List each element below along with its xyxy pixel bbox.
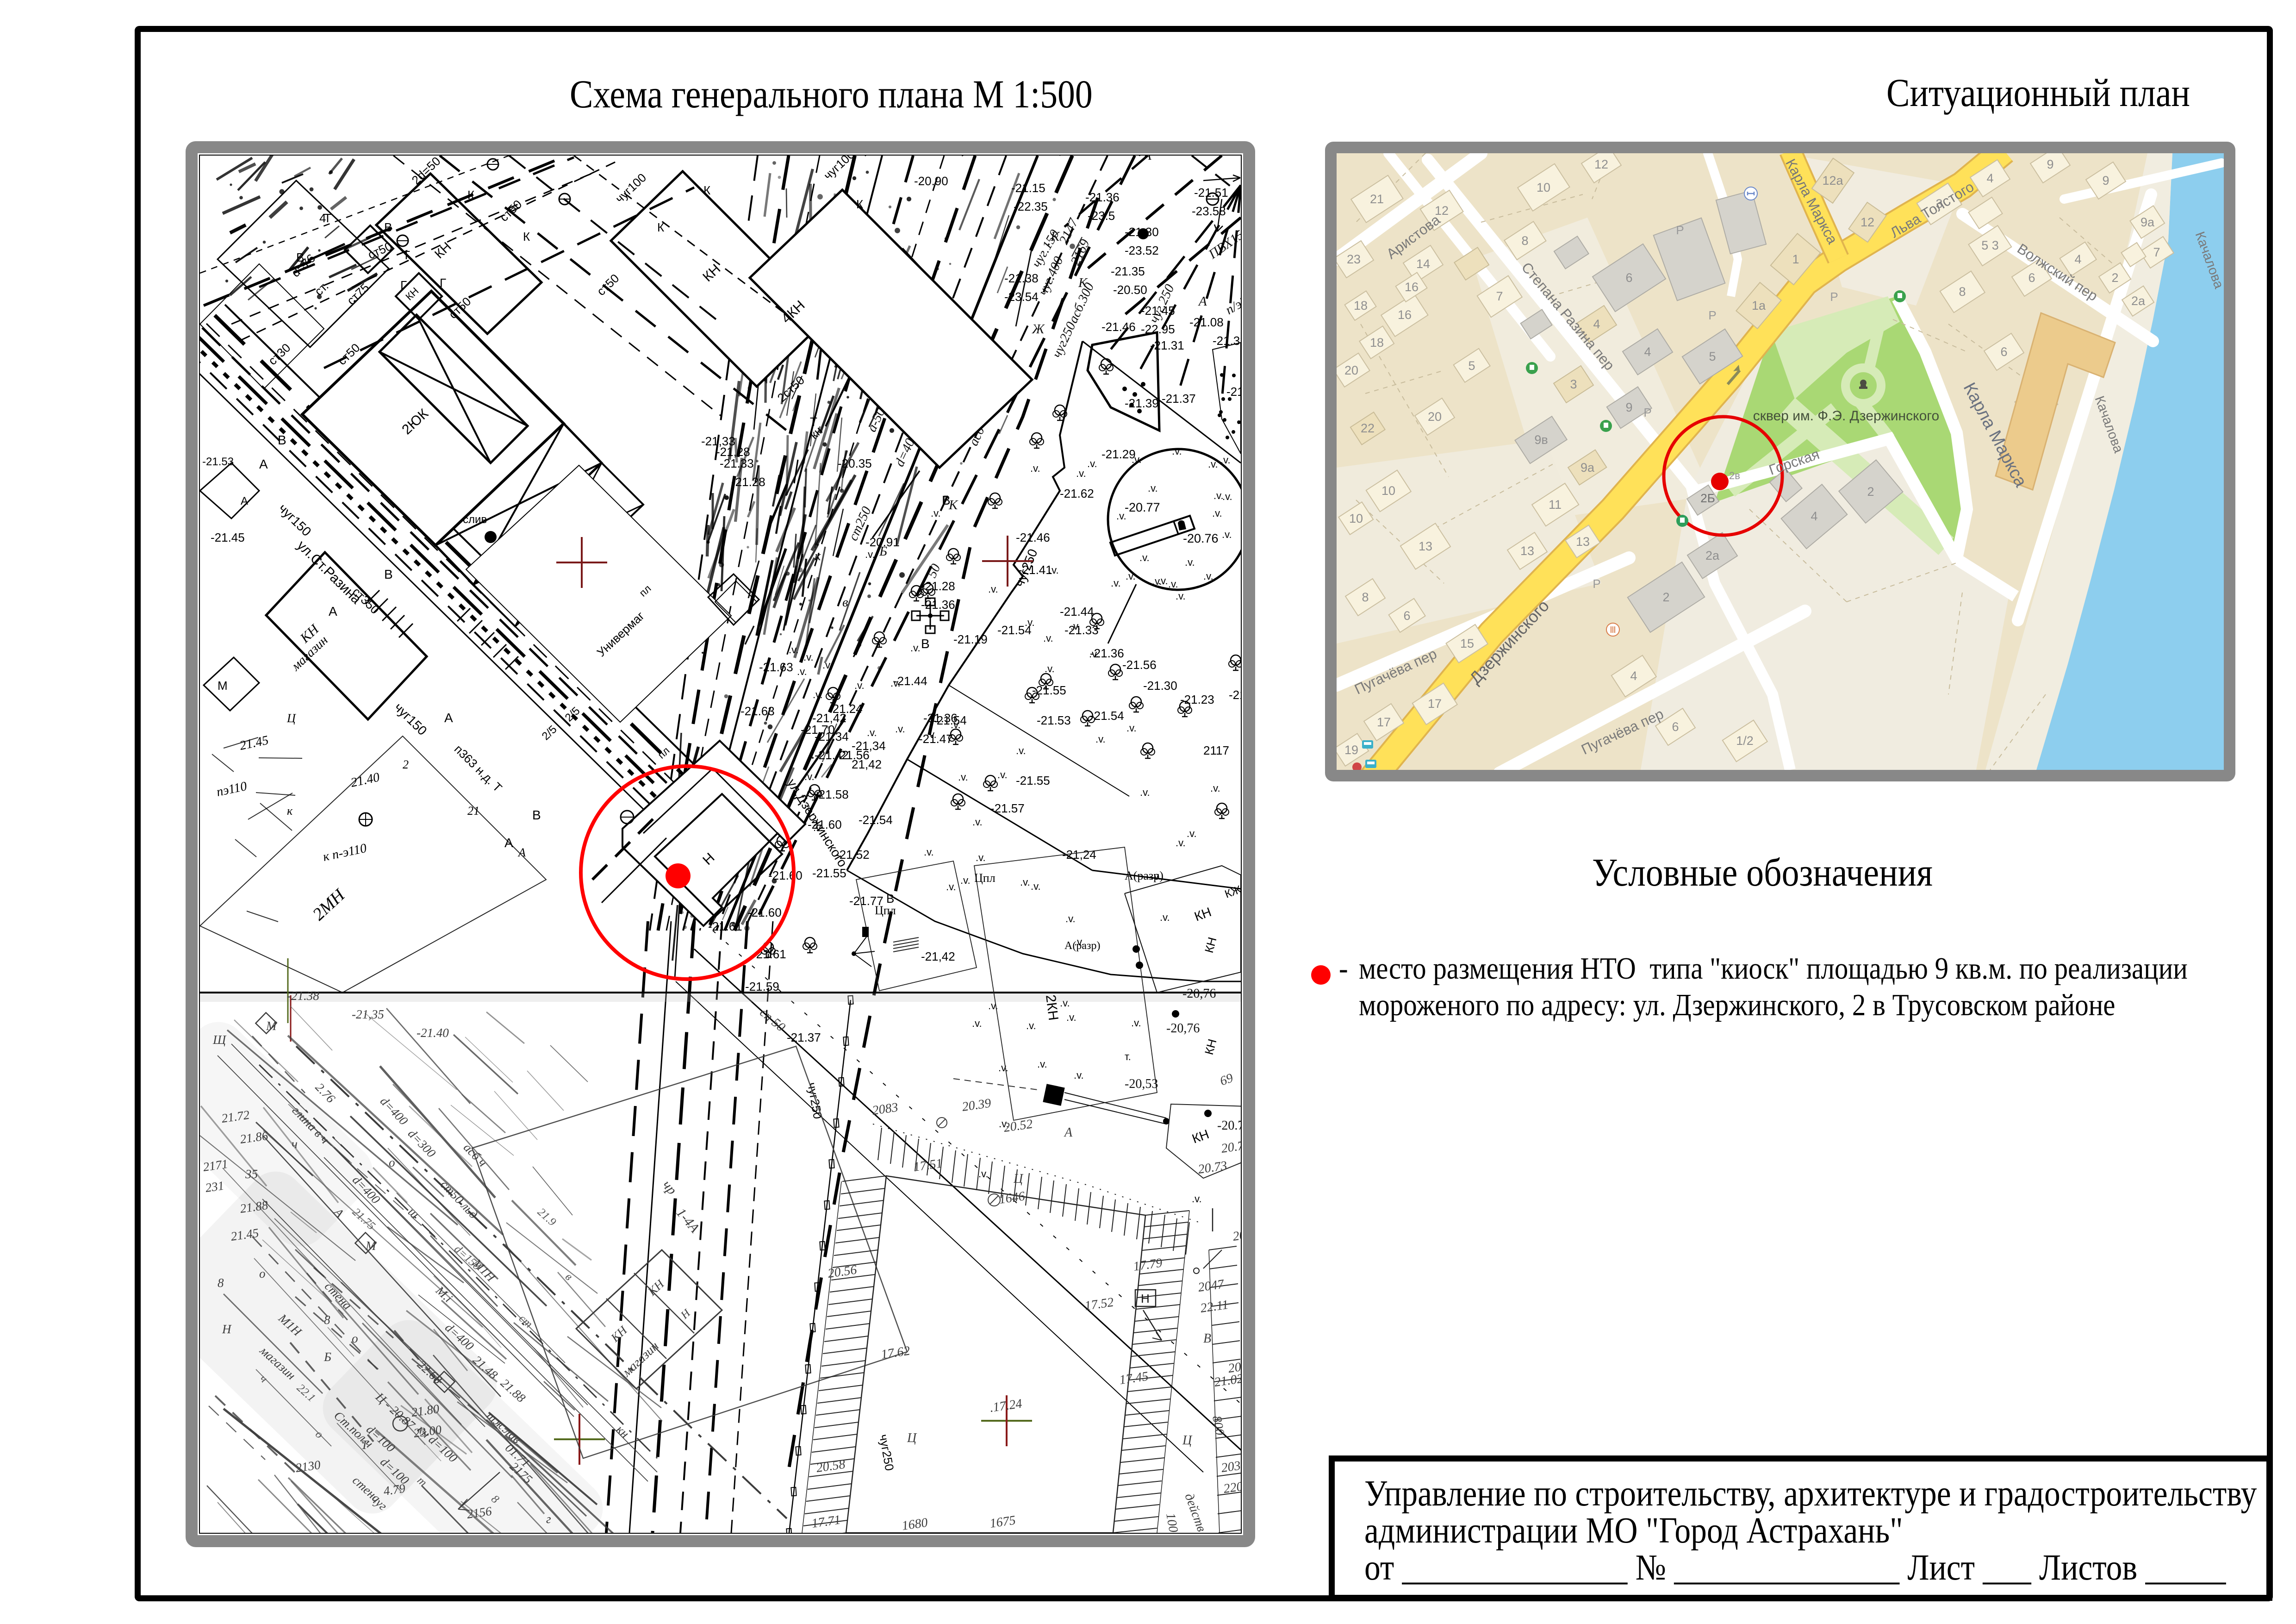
svg-text:-21,28: -21,28 [716, 445, 750, 459]
svg-text:-21.60: -21.60 [808, 818, 842, 831]
svg-text:.v.: .v. [1131, 1017, 1141, 1029]
svg-text:20.56: 20.56 [827, 1262, 858, 1280]
svg-text:20.9: 20.9 [1232, 1226, 1241, 1244]
svg-text:.v.: .v. [988, 583, 998, 595]
svg-text:20.70: 20.70 [1220, 1137, 1241, 1156]
svg-text:в: в [563, 1270, 575, 1283]
svg-text:.v.: .v. [1210, 782, 1220, 794]
svg-text:асб ч: асб ч [461, 1140, 490, 1169]
svg-text:4: 4 [1644, 345, 1651, 359]
svg-text:-21.45: -21.45 [211, 531, 245, 544]
svg-text:-20.91: -20.91 [865, 535, 900, 549]
svg-text:.v.: .v. [1076, 468, 1086, 479]
svg-text:-21.19: -21.19 [953, 632, 988, 646]
svg-text:Г: Г [440, 276, 446, 290]
svg-text:9: 9 [2047, 157, 2053, 171]
svg-text:9а: 9а [1580, 461, 1595, 475]
svg-text:.v.: .v. [1140, 787, 1150, 798]
svg-text:-21.08: -21.08 [1189, 315, 1224, 329]
svg-text:В: В [1203, 1331, 1211, 1346]
svg-text:-21.39: -21.39 [1125, 396, 1159, 410]
svg-text:Р: Р [1676, 223, 1684, 237]
svg-text:2Б: 2Б [1700, 491, 1715, 505]
svg-text:.v.: .v. [1176, 837, 1186, 849]
svg-text:.v.: .v. [895, 723, 905, 735]
svg-text:-20,76: -20,76 [1166, 1021, 1200, 1036]
svg-text:4: 4 [1811, 509, 1817, 523]
svg-text:-21.33: -21.33 [1064, 623, 1099, 637]
svg-text:-21.52: -21.52 [835, 848, 870, 862]
svg-text:Р: Р [1593, 577, 1600, 591]
svg-text:КН: КН [645, 1277, 667, 1299]
svg-text:Н: Н [222, 1322, 232, 1336]
svg-text:-20.35: -20.35 [838, 456, 872, 470]
svg-text:9: 9 [2102, 174, 2109, 187]
svg-text:3: 3 [1570, 377, 1577, 391]
svg-text:.v.: .v. [931, 507, 941, 519]
svg-text:6: 6 [1672, 720, 1679, 734]
svg-text:17.71: 17.71 [811, 1512, 842, 1530]
svg-text:.v.: .v. [1160, 912, 1170, 923]
svg-text:6: 6 [2000, 345, 2007, 359]
svg-text:7: 7 [2153, 245, 2160, 259]
svg-text:слив: слив [463, 513, 487, 526]
svg-text:22.11: 22.11 [1200, 1298, 1230, 1316]
svg-text:-21.58: -21.58 [815, 787, 849, 801]
svg-text:-21.59: -21.59 [745, 980, 779, 993]
svg-text:-21.55: -21.55 [1032, 683, 1066, 697]
svg-text:.v.: .v. [1020, 876, 1030, 888]
svg-text:.v.: .v. [1045, 663, 1055, 675]
svg-text:.v.: .v. [1185, 556, 1195, 568]
svg-text:К: К [1050, 229, 1060, 244]
svg-text:1675: 1675 [989, 1513, 1017, 1530]
svg-text:Цпл: Цпл [875, 904, 896, 917]
svg-text:А: А [241, 495, 248, 507]
svg-text:20.39: 20.39 [961, 1096, 992, 1114]
svg-text:К: К [467, 188, 474, 202]
svg-text:-20,53: -20,53 [1125, 1077, 1158, 1091]
svg-text:-21.53: -21.53 [1037, 713, 1071, 727]
svg-text:Р: Р [1643, 406, 1651, 419]
svg-text:20: 20 [1344, 363, 1358, 377]
svg-text:2083: 2083 [871, 1100, 899, 1118]
svg-text:-21.30: -21.30 [1143, 679, 1177, 693]
svg-text:1: 1 [1792, 252, 1799, 266]
svg-text:В: В [921, 637, 930, 651]
svg-text:-21.62: -21.62 [1060, 487, 1094, 500]
svg-text:12: 12 [1860, 215, 1874, 229]
svg-text:КН: КН [1202, 936, 1220, 955]
svg-text:.v.: .v. [1066, 1012, 1076, 1023]
svg-text:-21.37: -21.37 [787, 1031, 821, 1044]
svg-text:Ц: Ц [907, 1431, 917, 1445]
svg-text:15: 15 [1460, 637, 1474, 650]
svg-text:ст50 льд: ст50 льд [438, 1177, 481, 1221]
svg-text:.v.: .v. [1222, 529, 1232, 540]
svg-text:КН: КН [1192, 905, 1213, 924]
svg-text:-21.31: -21.31 [1150, 338, 1184, 352]
svg-text:22: 22 [1361, 421, 1375, 435]
svg-text:-21.36: -21.36 [1085, 190, 1120, 204]
svg-text:.v.: .v. [998, 1062, 1008, 1074]
svg-text:.v.: .v. [1168, 578, 1178, 590]
svg-text:пл: пл [655, 744, 672, 761]
svg-text:-21.54: -21.54 [997, 623, 1032, 637]
svg-text:В: В [942, 493, 951, 507]
svg-text:14: 14 [1416, 257, 1430, 271]
svg-text:6: 6 [2028, 271, 2035, 285]
svg-text:4: 4 [2074, 252, 2081, 266]
svg-text:г: г [546, 1512, 551, 1526]
svg-text:А(разр): А(разр) [1064, 940, 1100, 952]
svg-text:К: К [523, 230, 530, 244]
svg-text:Г: Г [400, 278, 407, 292]
svg-text:-22.35: -22.35 [1014, 200, 1048, 213]
svg-text:-21.60: -21.60 [747, 906, 782, 919]
svg-text:.v.: .v. [958, 771, 968, 783]
svg-text:-21.34: -21.34 [815, 730, 849, 743]
svg-text:8: 8 [1959, 285, 1966, 299]
svg-text:-21.61: -21.61 [708, 919, 742, 933]
svg-text:о: о [259, 1267, 266, 1280]
svg-text:.v.: .v. [976, 852, 986, 863]
svg-text:8: 8 [1362, 590, 1369, 604]
svg-text:4: 4 [1630, 669, 1637, 683]
svg-text:-21.56: -21.56 [1122, 658, 1157, 672]
svg-text:ст: ст [1237, 1519, 1241, 1533]
svg-text:.v.: .v. [1187, 828, 1197, 839]
svg-text:.v.: .v. [1065, 913, 1076, 924]
svg-text:2117: 2117 [1203, 743, 1229, 757]
svg-text:.v.: .v. [978, 1168, 989, 1180]
svg-text:21: 21 [467, 804, 479, 818]
svg-text:17.45: 17.45 [1119, 1369, 1150, 1387]
svg-text:21.45: 21.45 [238, 733, 270, 753]
svg-text:.v.: .v. [1139, 552, 1150, 563]
svg-text:-21,35: -21,35 [352, 1007, 384, 1021]
svg-text:9а: 9а [2140, 215, 2155, 229]
svg-text:Щ: Щ [212, 1033, 227, 1047]
svg-text:19: 19 [1344, 743, 1358, 757]
svg-text:17.51: 17.51 [913, 1156, 944, 1174]
svg-text:Ц: Ц [1013, 1172, 1024, 1186]
svg-text:1-4А: 1-4А [673, 1205, 703, 1236]
svg-text:-21.44: -21.44 [1060, 605, 1094, 618]
svg-text:18: 18 [1370, 336, 1384, 350]
svg-text:2: 2 [1867, 485, 1874, 499]
svg-text:10: 10 [1381, 484, 1395, 498]
svg-text:ст50: ст50 [594, 271, 622, 299]
svg-text:-21.54: -21.54 [1090, 709, 1124, 723]
svg-text:В: В [296, 250, 304, 264]
svg-text:5 3: 5 3 [1981, 238, 1999, 252]
svg-text:.v.: .v. [1192, 1193, 1202, 1205]
svg-text:16: 16 [1398, 308, 1412, 322]
svg-text:2.76: 2.76 [313, 1080, 338, 1106]
svg-text:2: 2 [2111, 271, 2118, 285]
svg-text:20: 20 [1428, 410, 1442, 424]
svg-text:о: о [389, 1156, 395, 1169]
svg-text:-21.15: -21.15 [1011, 181, 1045, 195]
svg-text:-22.95: -22.95 [1141, 322, 1175, 336]
svg-text:.v.: .v. [804, 771, 815, 782]
svg-text:-21.55: -21.55 [812, 866, 846, 880]
svg-text:-20.50: -20.50 [1113, 283, 1147, 297]
svg-text:8: 8 [218, 1276, 224, 1290]
svg-text:Ж: Ж [1032, 322, 1045, 337]
svg-text:кн: кн [614, 1422, 632, 1441]
svg-text:сквер им. Ф.Э. Дзержинского: сквер им. Ф.Э. Дзержинского [1753, 408, 1939, 424]
svg-text:.v.: .v. [924, 846, 934, 858]
svg-text:А: А [1064, 1125, 1073, 1140]
svg-text:.v.: .v. [867, 727, 877, 738]
svg-text:.v.: .v. [972, 1018, 982, 1029]
svg-text:А(разр): А(разр) [1125, 869, 1164, 882]
svg-text:.17.24: .17.24 [989, 1396, 1023, 1415]
svg-text:к: к [287, 804, 293, 818]
svg-text:18: 18 [1354, 299, 1368, 312]
svg-text:-21.36: -21.36 [1090, 646, 1124, 660]
svg-text:.v.: .v. [789, 644, 799, 656]
svg-text:.v.: .v. [813, 689, 823, 700]
svg-text:2209: 2209 [1223, 1478, 1241, 1496]
svg-text:-21.55: -21.55 [1016, 774, 1050, 787]
svg-text:.v.: .v. [1208, 458, 1218, 470]
svg-text:-21.47: -21.47 [919, 732, 953, 746]
svg-text:-21.35: -21.35 [1111, 264, 1145, 278]
svg-text:5: 5 [1468, 359, 1475, 373]
svg-text:4: 4 [1986, 171, 1993, 185]
svg-text:чуг250: чуг250 [877, 1433, 896, 1472]
svg-text:Ц: Ц [1182, 1433, 1193, 1448]
svg-text:17.79: 17.79 [1132, 1255, 1164, 1274]
svg-text:23: 23 [1347, 252, 1361, 266]
svg-text:1680: 1680 [901, 1515, 929, 1533]
svg-text:7: 7 [1496, 289, 1503, 303]
svg-text:5: 5 [1709, 350, 1716, 363]
svg-text:.v.: .v. [997, 769, 1008, 781]
svg-text:чуг150: чуг150 [276, 501, 314, 539]
svg-text:1а: 1а [1752, 299, 1766, 312]
svg-text:пэ110: пэ110 [215, 779, 248, 800]
svg-text:-21.40: -21.40 [1226, 385, 1241, 399]
svg-text:М: М [218, 679, 228, 693]
svg-text:.v.: .v. [854, 680, 865, 691]
svg-text:-21.23: -21.23 [1180, 693, 1214, 706]
svg-text:9: 9 [1625, 400, 1632, 414]
svg-text:-20.70: -20.70 [1217, 1118, 1241, 1133]
svg-text:16: 16 [1405, 280, 1419, 294]
svg-text:Т: Т [324, 211, 331, 225]
svg-text:К: К [1078, 275, 1088, 290]
svg-text:-23.54: -23.54 [1004, 290, 1039, 304]
svg-text:-21.57: -21.57 [990, 801, 1025, 815]
svg-text:в: в [842, 595, 848, 610]
svg-text:.v.: .v. [1116, 510, 1126, 522]
svg-text:21.40: 21.40 [349, 770, 381, 790]
svg-text:.v.: .v. [972, 816, 983, 828]
svg-text:-21.30: -21.30 [1125, 225, 1159, 239]
svg-text:К: К [703, 183, 710, 197]
svg-text:-20,76: -20,76 [1182, 987, 1216, 1001]
svg-text:100: 100 [1163, 1512, 1181, 1533]
svg-text:-21,42: -21,42 [921, 949, 955, 963]
svg-text:ч: ч [292, 1137, 298, 1151]
svg-text:2: 2 [403, 758, 409, 771]
svg-text:17.62: 17.62 [880, 1343, 911, 1362]
svg-text:.v.: .v. [1222, 491, 1232, 502]
svg-text:-20.76: -20.76 [1183, 531, 1219, 545]
svg-text:-21.45: -21.45 [1141, 304, 1175, 318]
svg-text:2/5: 2/5 [540, 723, 560, 743]
svg-text:1/2: 1/2 [1736, 734, 1754, 748]
svg-text:Р: Р [1830, 290, 1838, 304]
svg-text:.v.: .v. [910, 642, 921, 654]
svg-text:-21.63: -21.63 [740, 704, 775, 718]
svg-text:-21.46: -21.46 [1101, 320, 1136, 334]
svg-text:12а: 12а [1822, 174, 1843, 187]
svg-text:2МН: 2МН [309, 885, 349, 924]
svg-text:А: А [259, 457, 268, 471]
svg-text:.v.: .v. [1087, 458, 1097, 469]
svg-text:.v.: .v. [1016, 745, 1026, 756]
svg-text:-20.77: -20.77 [1125, 500, 1160, 514]
svg-text:1646: 1646 [998, 1189, 1026, 1206]
svg-text:.v.: .v. [1026, 1020, 1036, 1031]
svg-text:КН: КН [1202, 1037, 1220, 1056]
svg-text:чуг250: чуг250 [805, 1081, 825, 1120]
svg-text:М: М [266, 1019, 277, 1033]
svg-text:-21.42: -21.42 [815, 748, 849, 762]
svg-text:-21.32: -21.32 [1213, 334, 1241, 348]
svg-text:-21.60: -21.60 [768, 868, 803, 882]
svg-text:17: 17 [1428, 697, 1442, 711]
svg-text:-21.63: -21.63 [759, 660, 793, 674]
svg-text:.v.: .v. [865, 549, 875, 560]
svg-text:6: 6 [1403, 609, 1410, 623]
svg-text:13: 13 [1419, 539, 1432, 553]
svg-text:.v.: .v. [1152, 575, 1162, 587]
svg-text:10: 10 [1537, 181, 1550, 194]
svg-text:2: 2 [1662, 590, 1669, 604]
svg-text:20.73: 20.73 [1197, 1158, 1228, 1176]
svg-text:-23.58: -23.58 [1192, 204, 1226, 218]
svg-text:п363 н.д. Т: п363 н.д. Т [452, 742, 505, 795]
svg-text:800: 800 [1209, 1415, 1227, 1437]
svg-text:.v.: .v. [1111, 577, 1121, 589]
svg-text:21: 21 [1370, 192, 1384, 206]
svg-text:Р: Р [1708, 308, 1716, 322]
svg-text:-21.51: -21.51 [1194, 186, 1228, 200]
svg-text:2КН: 2КН [1043, 994, 1061, 1021]
svg-text:12: 12 [1594, 157, 1608, 171]
svg-text:к п-э110: к п-э110 [322, 841, 368, 864]
svg-text:чр: чр [660, 1177, 680, 1198]
svg-text:17.52: 17.52 [1084, 1295, 1115, 1313]
svg-text:-21,34: -21,34 [852, 739, 886, 753]
svg-text:КН: КН [1190, 1127, 1211, 1146]
svg-text:-21.54: -21.54 [859, 813, 893, 827]
svg-text:Н: Н [1141, 1292, 1150, 1305]
svg-text:11: 11 [1549, 498, 1562, 512]
svg-text:-23.52: -23.52 [1125, 244, 1159, 257]
svg-text:8: 8 [1521, 234, 1528, 248]
svg-text:6: 6 [1625, 271, 1632, 285]
svg-text:А: А [444, 711, 453, 725]
svg-text:ш: ш [405, 1205, 422, 1221]
svg-text:.v.: .v. [1031, 881, 1041, 892]
svg-text:12: 12 [1435, 204, 1449, 218]
svg-text:-21,42: -21,42 [812, 711, 846, 725]
svg-text:9в: 9в [1534, 433, 1548, 447]
svg-text:-21.38: -21.38 [287, 989, 319, 1003]
svg-text:35: 35 [245, 1167, 258, 1181]
svg-text:Цпл: Цпл [974, 871, 996, 885]
svg-text:2047: 2047 [1197, 1277, 1226, 1295]
svg-text:8: 8 [324, 1313, 330, 1327]
svg-text:М: М [365, 1239, 377, 1253]
svg-text:К: К [856, 197, 863, 211]
svg-text:.v.: .v. [946, 881, 956, 893]
svg-text:В: В [384, 567, 393, 581]
svg-text:17: 17 [1377, 715, 1391, 729]
svg-text:2а: 2а [2131, 294, 2146, 308]
svg-text:10: 10 [1349, 512, 1363, 525]
svg-text:2039: 2039 [1220, 1457, 1241, 1475]
svg-text:-21.29: -21.29 [1101, 447, 1136, 461]
svg-text:-21.40: -21.40 [417, 1026, 449, 1040]
svg-text:.v.: .v. [1030, 462, 1040, 474]
svg-text:-21.20: -21.20 [1229, 688, 1241, 702]
svg-text:т.: т. [1125, 1051, 1131, 1062]
svg-text:А: А [329, 604, 337, 618]
svg-text:.v.: .v. [803, 651, 814, 663]
svg-text:.v.: .v. [1212, 507, 1222, 519]
svg-text:.v.: .v. [1172, 445, 1182, 457]
svg-text:-21.28: -21.28 [921, 579, 955, 593]
svg-text:А: А [1198, 294, 1207, 309]
svg-text:.v.: .v. [1220, 454, 1231, 466]
svg-text:-21.38: -21.38 [1004, 271, 1039, 285]
svg-text:-21.53: -21.53 [202, 456, 234, 468]
svg-text:к: к [815, 549, 821, 563]
svg-text:-21.36: -21.36 [923, 711, 958, 725]
svg-text:21.75: 21.75 [350, 1206, 378, 1232]
svg-text:чуг150: чуг150 [392, 700, 430, 738]
svg-text:.v.: .v. [1095, 733, 1106, 745]
svg-text:Б: Б [324, 1350, 331, 1364]
svg-text:.v.: .v. [1126, 570, 1136, 582]
svg-text:4: 4 [1593, 317, 1600, 331]
svg-text:21,42: 21,42 [852, 757, 882, 771]
svg-text:действ: действ [1182, 1492, 1208, 1533]
svg-text:2в: 2в [1729, 470, 1740, 481]
svg-text:-20.90: -20.90 [914, 174, 948, 188]
svg-text:.v.: .v. [960, 874, 971, 886]
svg-text:В: В [278, 433, 286, 447]
svg-text:-21.41: -21.41 [1018, 563, 1052, 577]
svg-text:M.i: M.i [433, 1283, 455, 1305]
svg-text:13: 13 [1576, 535, 1590, 549]
svg-text:13: 13 [1520, 544, 1534, 558]
svg-text:.v.: .v. [822, 659, 833, 671]
svg-text:В: В [532, 808, 541, 822]
svg-text:.v.: .v. [1148, 482, 1158, 494]
svg-text:-21.44: -21.44 [893, 674, 927, 688]
svg-text:-21.37: -21.37 [1162, 392, 1196, 406]
svg-text:21.9: 21.9 [535, 1206, 559, 1229]
